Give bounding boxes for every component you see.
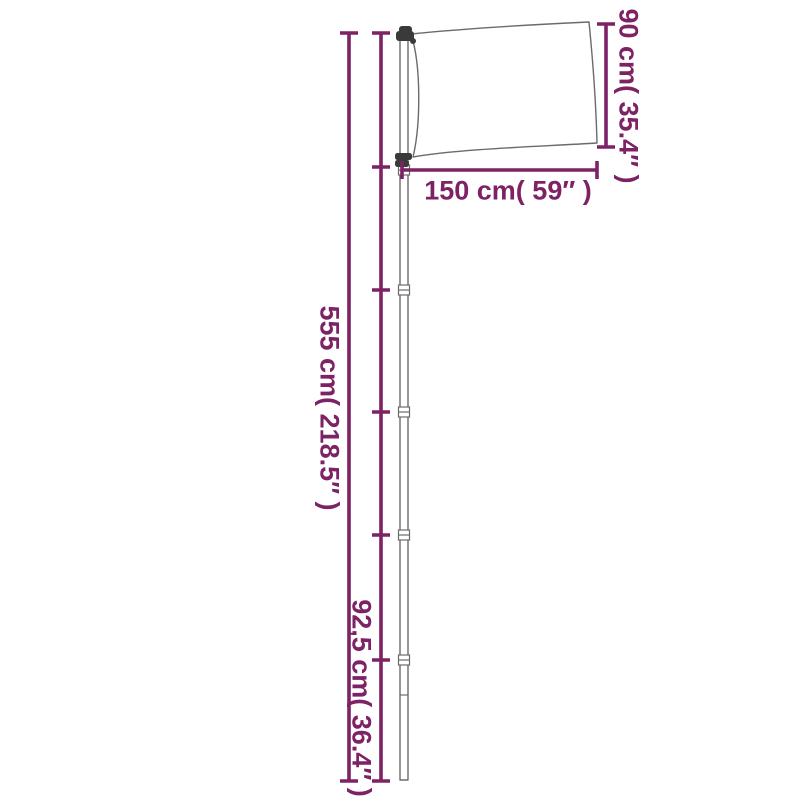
flag-outline bbox=[411, 22, 597, 157]
flagpole bbox=[399, 30, 410, 780]
flagpole-dimension-diagram: 555 cm( 218.5″ ) 92,5 cm( 36.4″ ) 90 cm(… bbox=[0, 0, 800, 800]
pole-body bbox=[400, 30, 408, 780]
dim-flag-height bbox=[597, 24, 615, 147]
flag-clamp-bottom bbox=[395, 153, 412, 160]
dim-segment-label: 92,5 cm( 36.4″ ) bbox=[347, 599, 377, 797]
flag-clamp-top-knob bbox=[410, 38, 416, 44]
dim-flag-height-label: 90 cm( 35.4″ ) bbox=[614, 8, 644, 183]
dim-flag-width-label: 150 cm( 59″ ) bbox=[424, 175, 592, 205]
dim-total-height-label: 555 cm( 218.5″ ) bbox=[315, 305, 345, 510]
product-image: 555 cm( 218.5″ ) 92,5 cm( 36.4″ ) 90 cm(… bbox=[0, 0, 800, 800]
dim-flag-height-line bbox=[597, 24, 615, 147]
